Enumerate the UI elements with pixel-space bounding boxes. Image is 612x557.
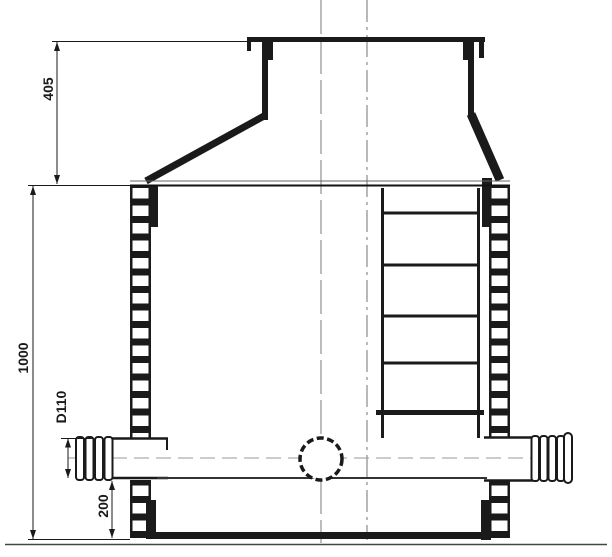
- inlet-rib: [95, 437, 103, 480]
- inlet-rib: [76, 437, 84, 480]
- neck-right-wall: [468, 42, 474, 118]
- dim-label-1000: 1000: [15, 342, 31, 373]
- dim-label-200: 200: [95, 494, 111, 518]
- drain-port-circle: [300, 438, 342, 480]
- ladder-bottom-rung: [376, 410, 484, 415]
- dim-label-D110: D110: [53, 390, 69, 423]
- technical-drawing-canvas: 405 1000 D110 200: [0, 0, 612, 557]
- ladder-left-rail: [381, 188, 384, 438]
- neck-right-seat: [463, 42, 468, 60]
- ladder-right-rail: [477, 188, 480, 438]
- floor-right-rib: [481, 500, 491, 540]
- outlet-end-bell: [564, 433, 572, 483]
- outlet-rib: [540, 436, 548, 481]
- outlet-rib: [549, 436, 557, 481]
- inlet-rib: [105, 437, 113, 480]
- flange-right-lip: [479, 42, 484, 58]
- floor-left-rib: [146, 500, 156, 539]
- outlet-rib: [532, 436, 540, 481]
- right-wall-upper: [489, 186, 510, 437]
- left-wall-upper: [130, 186, 151, 438]
- right-wall-lower: [489, 481, 510, 538]
- dim-label-405: 405: [40, 77, 56, 101]
- inlet-rib: [86, 437, 94, 480]
- neck-left-wall: [262, 42, 268, 120]
- manhole-cross-section-drawing: 405 1000 D110 200: [0, 0, 612, 557]
- neck-left-seat: [268, 42, 273, 60]
- flange-left-lip: [247, 42, 251, 51]
